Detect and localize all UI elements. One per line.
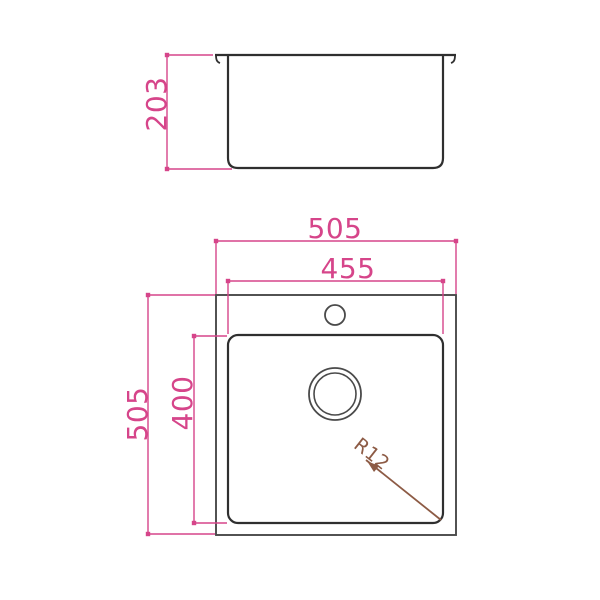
dim-dot	[192, 334, 196, 338]
corner-radius-label: R12	[350, 434, 394, 475]
corner-radius-annotation: R12	[350, 434, 441, 520]
side-view-basin-profile	[228, 55, 443, 168]
dim-dot	[226, 279, 230, 283]
side-view-rim-right-lip	[451, 55, 455, 63]
sink-technical-drawing: 203 505 455 505 400 R12	[0, 0, 600, 600]
side-view-rim-left-lip	[216, 55, 220, 63]
dim-dot	[214, 239, 218, 243]
depth-dimension-label: 203	[140, 77, 173, 132]
overall-depth-dimension-label: 505	[121, 387, 154, 442]
dim-dot	[165, 167, 169, 171]
dimension-labels: 203 505 455 505 400	[121, 77, 375, 442]
dim-dot	[146, 532, 150, 536]
side-view-outline	[215, 55, 456, 168]
faucet-hole-circle	[325, 305, 345, 325]
dim-dot	[165, 53, 169, 57]
drawing-canvas: 203 505 455 505 400 R12	[0, 0, 600, 600]
dim-dot	[192, 521, 196, 525]
dim-dot	[146, 293, 150, 297]
plan-view-outline	[216, 295, 456, 535]
drain-inner-circle	[314, 373, 356, 415]
dim-dot	[454, 239, 458, 243]
drain-outer-circle	[309, 368, 361, 420]
bowl-depth-dimension-label: 400	[166, 376, 199, 431]
overall-width-dimension-label: 505	[308, 212, 363, 245]
bowl-width-dimension-label: 455	[321, 252, 376, 285]
dim-dot	[441, 279, 445, 283]
